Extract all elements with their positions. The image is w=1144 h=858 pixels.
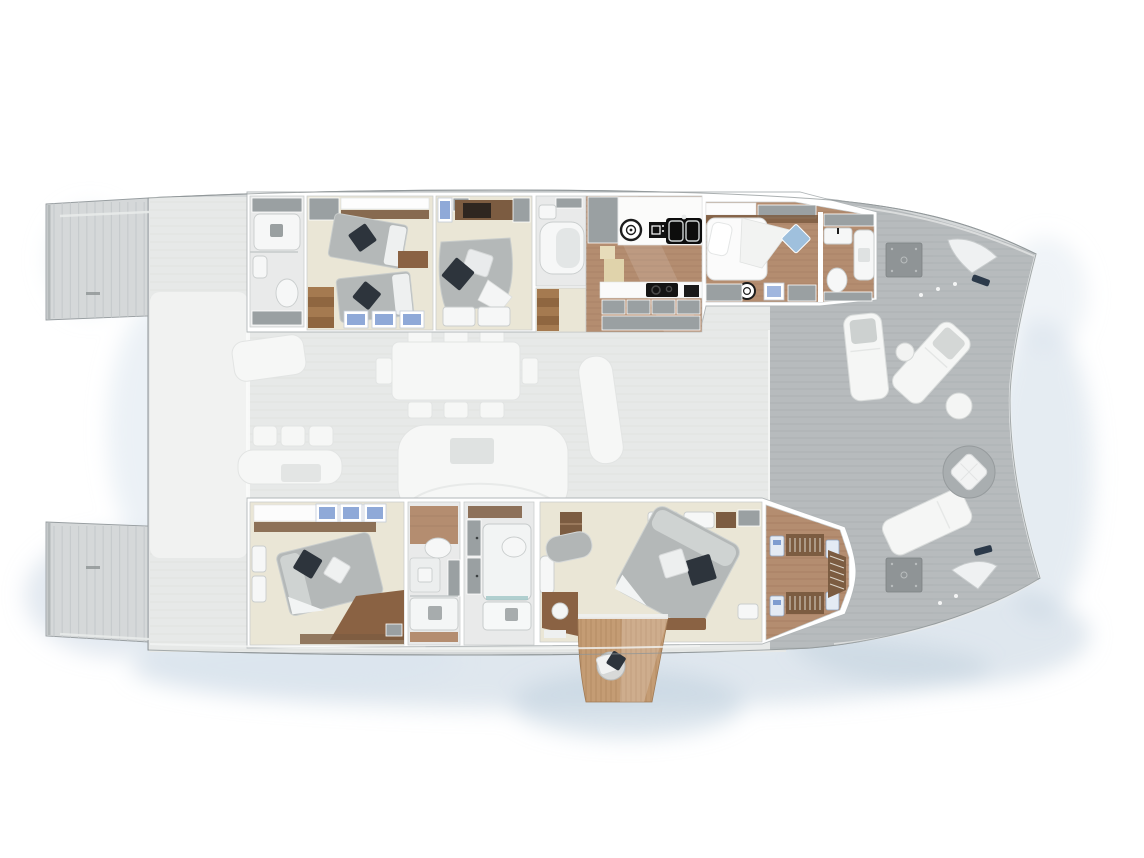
double-sink	[666, 215, 702, 244]
toilet	[276, 279, 298, 307]
hull-windows	[316, 504, 386, 522]
deck-hatch	[886, 243, 922, 277]
angled-wardrobe	[828, 550, 846, 598]
sink	[253, 256, 267, 278]
cockpit-seating	[238, 426, 342, 484]
oven-icon	[649, 222, 666, 238]
room-port-bathroom-1	[408, 502, 460, 645]
port-hull-cabins	[247, 498, 856, 648]
round-pouf	[943, 446, 995, 498]
washing-machine-icon	[621, 220, 641, 240]
cooktop	[646, 283, 678, 297]
room-twin-guest-cabin	[307, 196, 433, 330]
deck-hatch	[886, 558, 922, 592]
stairs	[308, 287, 334, 328]
sink	[539, 205, 556, 219]
room-port-bathroom-2	[464, 502, 534, 645]
tv	[463, 203, 491, 218]
aft-balcony	[578, 614, 668, 702]
round-cocktail-table	[946, 393, 972, 419]
room-starboard-aft-bathroom	[250, 196, 304, 327]
room-vip-bathroom	[536, 196, 586, 332]
toilet	[827, 268, 847, 292]
hull-windows	[344, 311, 424, 328]
room-vip-cabin	[436, 196, 532, 330]
stairs	[537, 289, 559, 331]
catamaran-floorplan-canvas	[0, 0, 1144, 858]
toilet	[502, 537, 526, 557]
nightstand	[398, 251, 428, 268]
room-galley	[586, 196, 702, 332]
aft-cockpit-floor	[150, 292, 248, 558]
appliance	[684, 285, 699, 297]
double-bed	[439, 238, 512, 312]
round-side-table	[896, 343, 914, 361]
catamaran-floorplan	[0, 0, 1144, 858]
room-port-guest-cabin	[250, 502, 404, 645]
large-shower	[483, 524, 531, 600]
stool	[552, 603, 568, 619]
toilet	[425, 538, 451, 558]
sink	[418, 568, 432, 582]
